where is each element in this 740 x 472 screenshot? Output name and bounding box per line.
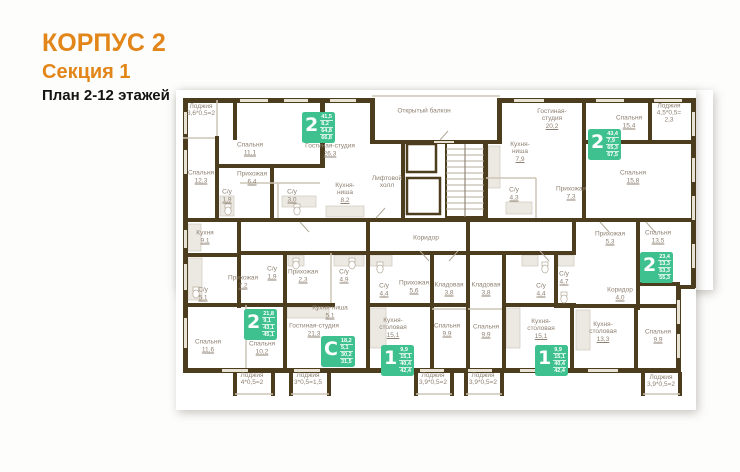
floorplan-drawing — [0, 0, 740, 472]
doors — [300, 131, 655, 261]
fixtures — [188, 146, 590, 350]
stairs — [446, 143, 484, 217]
elevators — [407, 144, 440, 214]
windows — [184, 99, 695, 372]
floorplan-page: КОРПУС 2 Секция 1 План 2-12 этажей — [0, 0, 740, 472]
